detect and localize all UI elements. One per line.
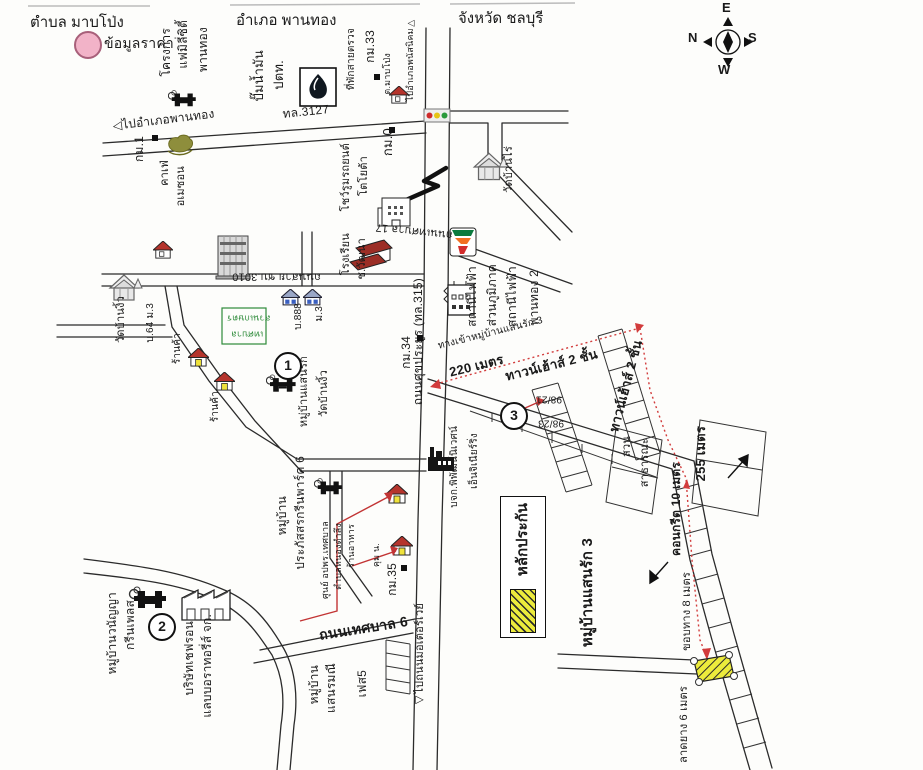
marker-2: 2	[148, 613, 176, 641]
compass-icon	[703, 17, 753, 67]
house-m3-icon	[303, 289, 322, 305]
label-project-family-1: โครงการ	[160, 28, 173, 77]
label-kum-n: คุม น.	[372, 543, 381, 567]
road-side-south	[558, 654, 697, 674]
label-house-64: บ.64 ม.3	[146, 303, 157, 343]
label-asphalt-6m: ลาดยาง 6 เมตร	[679, 686, 691, 763]
marker-1: 1	[274, 352, 302, 380]
ptt-station-icon	[300, 68, 336, 106]
price-legend-swatch	[74, 31, 102, 59]
label-chevron-2: แลบบอราทอรี่ส์ จก.	[201, 614, 214, 718]
label-project-family-2: แฟมิลี่ซิตี้	[177, 20, 190, 69]
label-dist-255m: 255 เมตร	[694, 426, 708, 481]
label-pipat-2: เอ็นจิเนียร์ริ่ง	[470, 433, 481, 489]
label-sanramanee-1: หมู่บ้าน	[308, 665, 321, 704]
label-sanrak3: หมู่บ้านแสนรัก 3	[580, 538, 596, 647]
marker-3: 3	[500, 402, 528, 430]
park-block	[606, 428, 662, 514]
label-cafe-amazon-1: คาเฟ่	[160, 160, 172, 186]
label-to-phanatnikhom: ไปอำเภอพนัสนิคม▷	[406, 18, 415, 101]
label-showroom-2: โตโยต้า	[359, 156, 371, 196]
shop-house-icon	[214, 372, 235, 390]
target-plot	[691, 652, 738, 686]
zigzag-icon	[406, 168, 446, 200]
label-km33: กม.33	[364, 30, 377, 63]
label-wat-banngio: วัดบ้านงิ้ว	[116, 296, 128, 343]
label-school-chw-1: โรงเรียน	[341, 233, 353, 275]
compass-n-label: N	[688, 30, 697, 45]
compass-w-label: W	[718, 62, 730, 77]
label-park-2: สาธารณะ	[640, 438, 652, 487]
label-edge-8m: ขอบทาง 8 เมตร	[682, 572, 694, 651]
label-pipat-1: บจก.พิพัฒน์นิเวศน์	[450, 426, 461, 508]
label-restaurant: ร้านอาหาร	[347, 524, 356, 568]
guarantee-legend-box: หลักประกัน	[500, 496, 546, 638]
label-showroom-1: โชว์รูมรถยนต์	[341, 143, 353, 211]
compass-e-label: E	[722, 0, 731, 15]
km-marker-square	[401, 565, 407, 571]
label-sanramanee-2: แสนรมณี	[325, 663, 338, 713]
label-wat-banngio-2: วัดบ้านงิ้ว	[319, 370, 331, 417]
label-pea-2: ส่วนภูมิภาค	[486, 264, 499, 326]
label-project-family-3: พานทอง	[197, 27, 210, 72]
label-oppor-1: ศูนย์ อปพร.เทศบาล	[321, 521, 330, 599]
km-marker-square	[374, 74, 380, 80]
label-pea-1: สถานีไฟฟ้า	[466, 266, 479, 327]
label-cafe-amazon-2: อเมซอน	[176, 166, 188, 206]
label-pea-3: สถานีไฟฟ้า	[506, 266, 519, 327]
label-park-1: สวน	[622, 436, 634, 457]
map-canvas: ตำบล มาบโป่ง อำเภอ พานทอง จังหวัด ชลบุรี…	[0, 0, 923, 770]
label-road-chb3010: ถนนสาย ชบ.3010	[232, 270, 321, 282]
label-no-9823: 98/23	[538, 417, 564, 428]
traffic-light-icon	[424, 109, 450, 122]
district-province-label: จังหวัด ชลบุรี	[458, 6, 543, 30]
label-wat-banrai: วัดบ้านไร่	[504, 146, 516, 193]
label-house-888: บ.888	[294, 303, 305, 330]
district-amphoe-label: อำเภอ พานทอง	[236, 8, 336, 32]
compass-s-label: S	[748, 30, 757, 45]
red-dotted-route	[436, 328, 706, 655]
km-marker-square	[389, 127, 395, 133]
label-shop-1: ร้านค้า	[173, 333, 184, 364]
label-green-note-2: เทศบาล	[231, 329, 263, 338]
label-tambon-mabpong: ต.มาบโป่ง	[383, 53, 392, 95]
house-icon	[153, 241, 173, 258]
label-police-point: ที่พักสายตรวจ	[347, 28, 358, 90]
label-chevron-1: บริษัทเชฟรอน	[183, 621, 196, 695]
label-oppor-2: ตำบลหนองตำลึง	[334, 523, 343, 590]
district-tambon-label: ตำบล มาบโป่ง	[30, 10, 124, 34]
guarantee-legend-label: หลักประกัน	[511, 503, 535, 576]
label-school-chw-2: ช.วัฒนา	[357, 238, 369, 280]
prapatsorn-gate-icon	[314, 479, 341, 495]
label-house-m3: ม.3	[315, 306, 326, 322]
shop-house-icon	[188, 348, 209, 366]
label-sanramanee-3: เฟส5	[356, 670, 369, 697]
label-km35: กม.35	[386, 563, 399, 596]
label-shop-2: ร้านค้า	[211, 391, 222, 422]
label-prapatsorn-1: หมู่บ้าน	[276, 496, 289, 535]
label-prapatsorn-2: ประภัสสรกรีนพาร์ค 6	[294, 456, 307, 570]
label-green-note-1: สวนเกษตร	[227, 313, 270, 322]
label-to-motorway: ◁ไปถนนมอเตอร์เวย์	[415, 603, 427, 707]
guarantee-legend-swatch	[510, 589, 536, 633]
label-no-9821: 98/21	[536, 393, 562, 404]
label-ptt-2: ปตท.	[272, 60, 286, 90]
label-km1: กม.1	[133, 136, 146, 162]
seven-eleven-icon	[450, 228, 476, 256]
label-wananya-2: กรีนเพลส	[124, 600, 137, 650]
km-marker-square	[417, 335, 423, 341]
label-concrete-10m: คอนกรีต 10 เมตร	[670, 462, 683, 556]
family-city-gate-icon	[168, 91, 195, 107]
km-marker-square	[152, 135, 158, 141]
label-ptt-1: ปั๊มน้ำมัน	[252, 50, 266, 101]
label-road-sukprayoon: ถนนศุขประยูร (ทล.315)	[412, 278, 425, 405]
label-wananya-1: หมู่บ้านวนัญญา	[106, 592, 119, 675]
